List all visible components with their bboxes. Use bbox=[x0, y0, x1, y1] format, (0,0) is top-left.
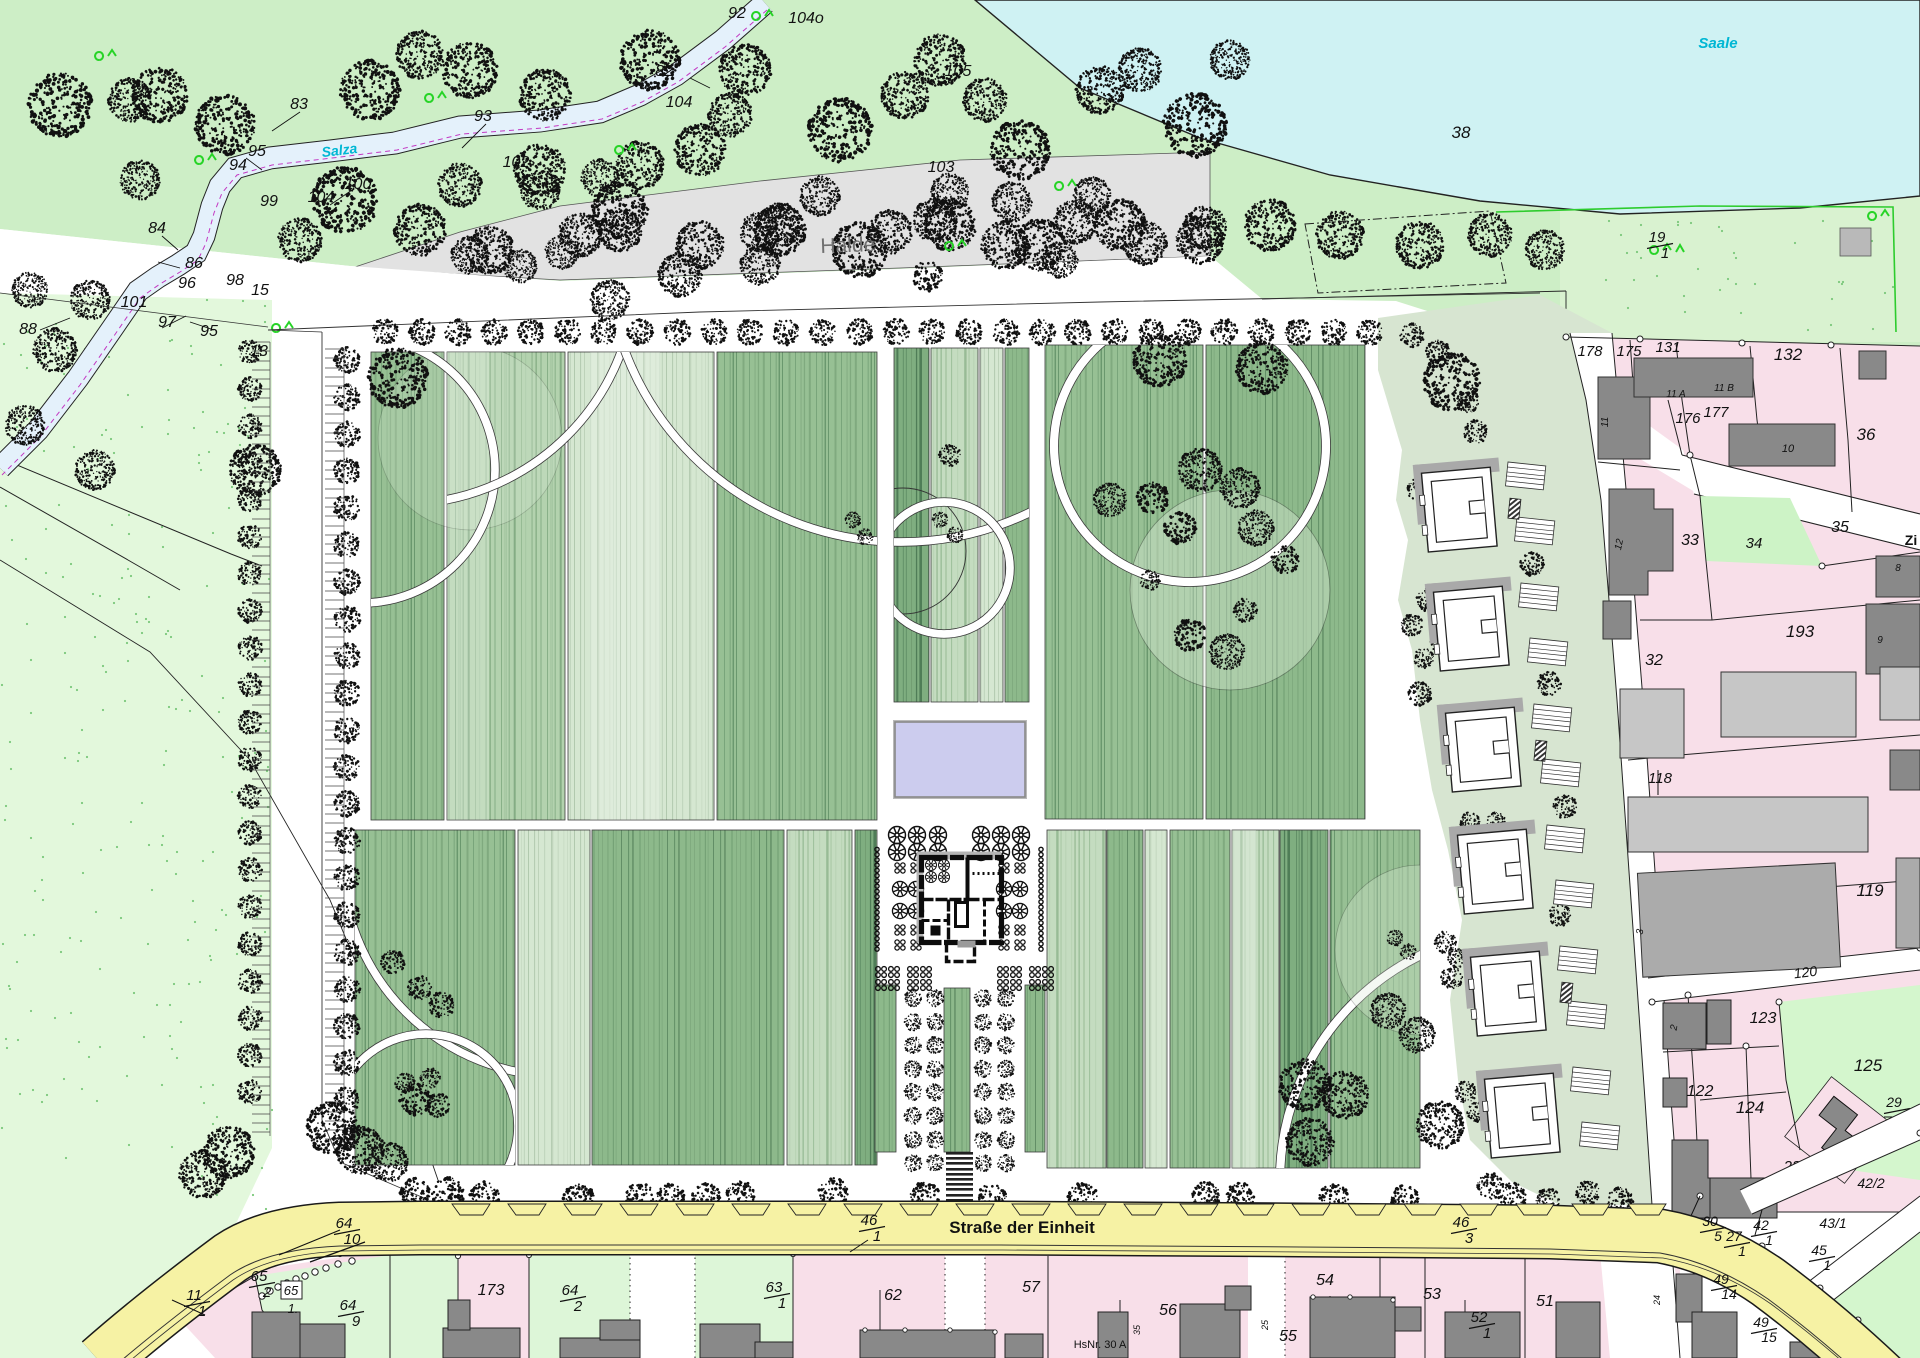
svg-text:95: 95 bbox=[248, 143, 266, 160]
svg-text:38: 38 bbox=[1452, 123, 1471, 142]
svg-text:32: 32 bbox=[1645, 652, 1663, 669]
svg-text:9: 9 bbox=[1877, 635, 1883, 646]
svg-text:11 A: 11 A bbox=[1666, 389, 1686, 400]
svg-text:124: 124 bbox=[1736, 1098, 1764, 1117]
svg-text:1.: 1. bbox=[288, 1301, 299, 1316]
svg-text:45: 45 bbox=[1811, 1242, 1827, 1258]
svg-text:46: 46 bbox=[861, 1212, 878, 1229]
svg-text:56: 56 bbox=[1159, 1302, 1177, 1319]
svg-text:14: 14 bbox=[1721, 1286, 1737, 1302]
svg-text:99: 99 bbox=[260, 193, 278, 210]
svg-text:64: 64 bbox=[562, 1282, 579, 1299]
svg-text:104: 104 bbox=[308, 189, 335, 206]
svg-text:122: 122 bbox=[1687, 1083, 1714, 1100]
svg-text:Straße der Einheit: Straße der Einheit bbox=[949, 1218, 1095, 1237]
svg-text:55: 55 bbox=[1279, 1328, 1297, 1345]
svg-text:65: 65 bbox=[284, 1283, 299, 1298]
svg-text:1: 1 bbox=[198, 1303, 206, 1320]
svg-text:1: 1 bbox=[778, 1295, 786, 1312]
svg-text:131: 131 bbox=[1655, 339, 1680, 356]
svg-text:95: 95 bbox=[200, 323, 218, 340]
svg-text:120: 120 bbox=[1793, 963, 1818, 982]
svg-text:123: 123 bbox=[1750, 1010, 1777, 1027]
svg-text:84: 84 bbox=[148, 220, 166, 237]
svg-text:8: 8 bbox=[1895, 563, 1901, 574]
svg-text:30: 30 bbox=[1702, 1213, 1718, 1229]
svg-text:1: 1 bbox=[1738, 1243, 1746, 1259]
svg-text:33: 33 bbox=[1681, 532, 1699, 549]
svg-text:2: 2 bbox=[573, 1298, 583, 1315]
svg-text:9: 9 bbox=[352, 1313, 361, 1330]
svg-text:173: 173 bbox=[478, 1282, 505, 1299]
svg-text:1: 1 bbox=[1823, 1257, 1831, 1273]
svg-text:82: 82 bbox=[655, 63, 673, 80]
svg-text:175: 175 bbox=[1616, 343, 1642, 360]
svg-text:92: 92 bbox=[728, 5, 746, 22]
svg-text:34: 34 bbox=[1746, 535, 1763, 552]
svg-text:36: 36 bbox=[1857, 425, 1876, 444]
svg-text:105: 105 bbox=[945, 63, 972, 80]
svg-text:104: 104 bbox=[666, 94, 693, 111]
svg-text:176: 176 bbox=[1675, 410, 1701, 427]
svg-text:19: 19 bbox=[1649, 229, 1666, 246]
svg-text:103: 103 bbox=[928, 159, 955, 176]
svg-text:193: 193 bbox=[1786, 622, 1815, 641]
svg-text:15: 15 bbox=[1761, 1329, 1777, 1345]
svg-text:125: 125 bbox=[1854, 1056, 1883, 1075]
svg-text:86: 86 bbox=[185, 255, 203, 272]
svg-text:35: 35 bbox=[1831, 519, 1849, 536]
svg-text:119: 119 bbox=[1856, 881, 1884, 900]
svg-text:100: 100 bbox=[345, 176, 372, 193]
svg-text:43/1: 43/1 bbox=[1819, 1215, 1846, 1231]
svg-text:25: 25 bbox=[1260, 1319, 1270, 1331]
svg-text:10: 10 bbox=[1782, 443, 1795, 455]
svg-text:24: 24 bbox=[1652, 1295, 1662, 1306]
svg-text:Zi: Zi bbox=[1905, 532, 1917, 548]
svg-text:63: 63 bbox=[766, 1279, 783, 1296]
svg-text:42/2: 42/2 bbox=[1857, 1175, 1884, 1191]
svg-text:65: 65 bbox=[251, 1268, 268, 1285]
svg-text:1: 1 bbox=[1765, 1232, 1773, 1248]
svg-text:HsNr. 30 A: HsNr. 30 A bbox=[1074, 1339, 1127, 1351]
svg-text:27: 27 bbox=[1725, 1228, 1743, 1244]
svg-text:1: 1 bbox=[1483, 1325, 1491, 1342]
svg-text:49: 49 bbox=[1753, 1314, 1769, 1330]
svg-text:29: 29 bbox=[1885, 1094, 1902, 1110]
svg-text:64: 64 bbox=[336, 1215, 353, 1232]
svg-text:51: 51 bbox=[1536, 1293, 1554, 1310]
svg-text:98: 98 bbox=[226, 272, 244, 289]
svg-text:177: 177 bbox=[1703, 404, 1729, 421]
svg-text:1: 1 bbox=[1661, 245, 1669, 262]
svg-text:1: 1 bbox=[873, 1228, 881, 1245]
svg-text:Halde: Halde bbox=[820, 233, 876, 258]
svg-text:49: 49 bbox=[1713, 1271, 1729, 1287]
svg-text:93: 93 bbox=[474, 108, 492, 125]
svg-text:118: 118 bbox=[1648, 770, 1673, 787]
svg-text:132: 132 bbox=[1774, 345, 1803, 364]
svg-text:10: 10 bbox=[344, 1231, 361, 1248]
svg-text:11: 11 bbox=[186, 1287, 202, 1304]
svg-text:2: 2 bbox=[262, 1284, 272, 1301]
svg-text:Saale: Saale bbox=[1698, 35, 1737, 52]
svg-text:62: 62 bbox=[884, 1287, 902, 1304]
svg-text:57: 57 bbox=[1022, 1279, 1041, 1296]
svg-text:46: 46 bbox=[1453, 1214, 1470, 1231]
svg-text:52: 52 bbox=[1471, 1309, 1488, 1326]
svg-text:178: 178 bbox=[1577, 343, 1603, 360]
svg-text:96: 96 bbox=[178, 275, 196, 292]
svg-text:83: 83 bbox=[290, 96, 308, 113]
svg-text:11 B: 11 B bbox=[1714, 383, 1734, 394]
svg-text:11: 11 bbox=[1600, 417, 1611, 427]
svg-text:54: 54 bbox=[1316, 1272, 1334, 1289]
svg-text:64: 64 bbox=[340, 1297, 357, 1314]
svg-text:97: 97 bbox=[158, 314, 177, 331]
svg-text:35: 35 bbox=[1132, 1324, 1142, 1335]
svg-text:5: 5 bbox=[1714, 1228, 1722, 1244]
svg-text:94: 94 bbox=[229, 157, 247, 174]
svg-text:104o: 104o bbox=[788, 10, 824, 27]
svg-text:42: 42 bbox=[1753, 1217, 1769, 1233]
svg-text:15: 15 bbox=[251, 282, 269, 299]
svg-text:102: 102 bbox=[503, 154, 530, 171]
svg-text:3: 3 bbox=[1465, 1230, 1474, 1247]
svg-text:88: 88 bbox=[19, 321, 37, 338]
svg-text:53: 53 bbox=[1423, 1286, 1441, 1303]
